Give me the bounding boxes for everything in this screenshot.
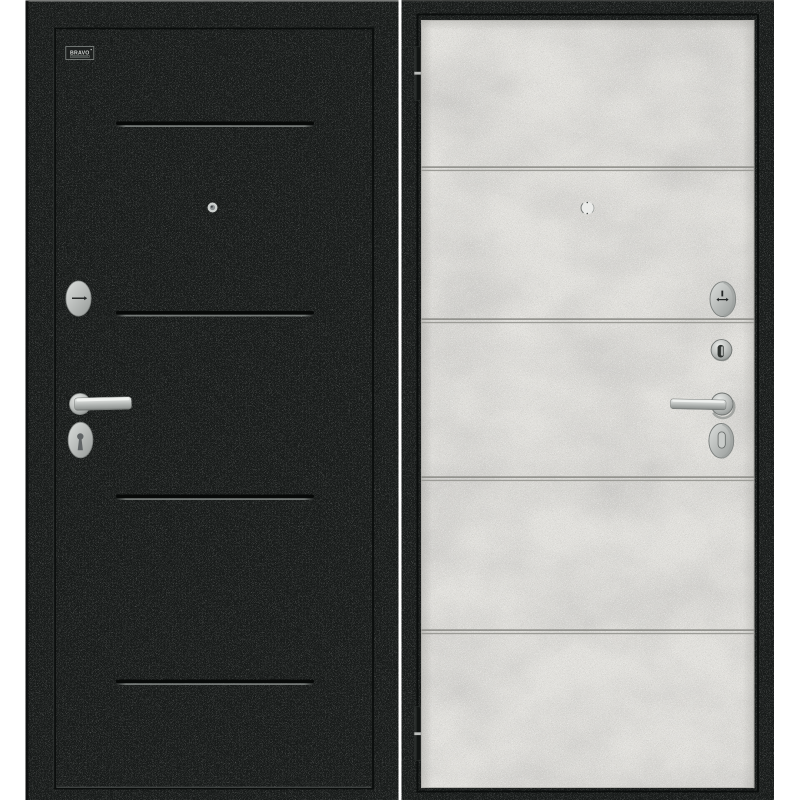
svg-text:BRAVO: BRAVO — [70, 51, 90, 57]
